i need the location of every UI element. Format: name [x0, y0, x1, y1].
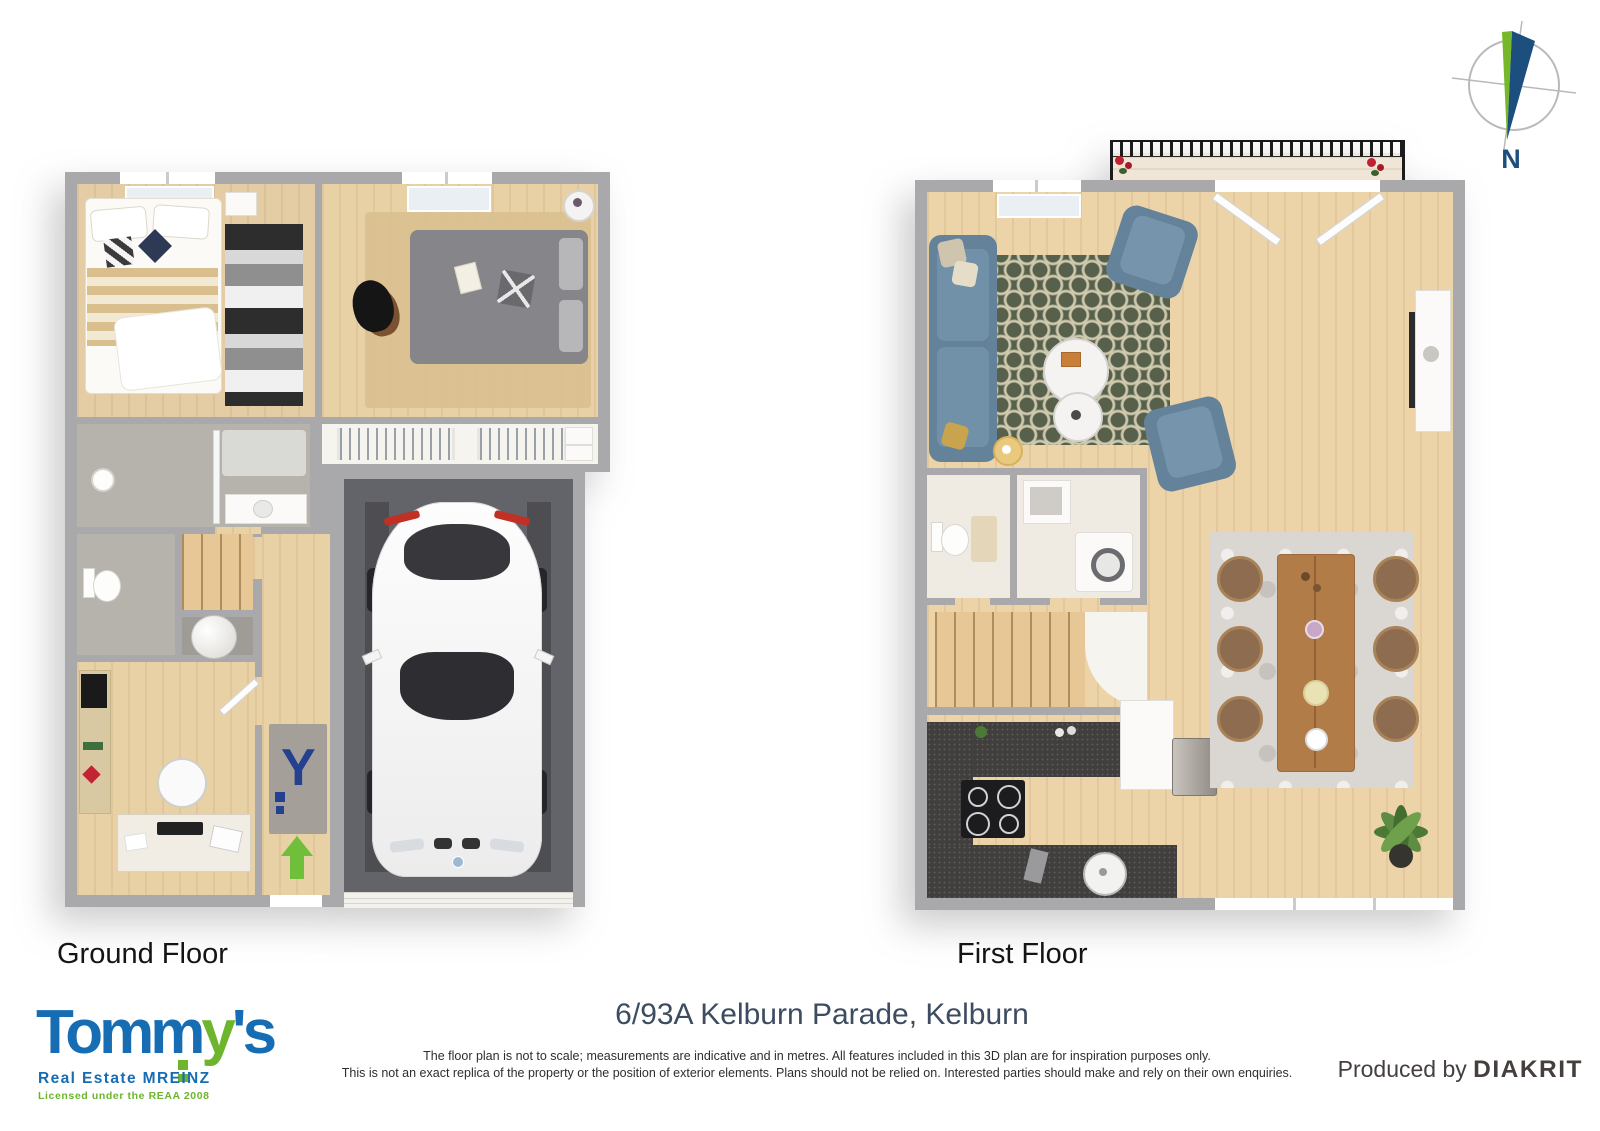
car-windshield — [400, 652, 514, 720]
car-badge — [452, 856, 464, 868]
papers — [124, 832, 148, 851]
dining-chair — [1373, 626, 1419, 672]
table-plate-gold — [1303, 680, 1329, 706]
stove-burner — [999, 814, 1019, 834]
decor-item — [573, 198, 582, 207]
balcony-railing — [1110, 140, 1405, 157]
garage-door-seam — [344, 898, 573, 899]
diakrit-logo: DIAKRIT — [1473, 1056, 1583, 1083]
tommys-wordmark: Tommy's — [36, 1002, 273, 1064]
tommys-logo: Tommy's Real Estate MREINZ Licensed unde… — [36, 1002, 316, 1112]
flower-pot-red — [1367, 158, 1376, 167]
balcony-door-opening — [1215, 180, 1380, 192]
tv-screen — [1409, 312, 1415, 408]
kitchen-jar — [1067, 726, 1076, 735]
ground-floor-plan: Y — [65, 172, 610, 907]
interior-wall — [1100, 598, 1147, 605]
interior-wall — [1010, 475, 1017, 605]
stereo-unit — [81, 674, 107, 708]
bedroom-1-rug — [225, 224, 303, 406]
coffee-table-book — [1061, 352, 1081, 367]
interior-wall — [927, 468, 1147, 475]
laundry-tub-basin — [1030, 487, 1062, 515]
stairs-opening — [253, 537, 262, 579]
dining-chair — [1217, 626, 1263, 672]
window-mullion — [445, 172, 448, 184]
nightstand — [225, 192, 257, 216]
wardrobe-hangers — [477, 428, 567, 460]
vanity-basin — [253, 500, 273, 518]
compass: N — [1448, 16, 1580, 172]
floor-label-ground: Ground Floor — [57, 938, 228, 971]
dining-chair — [1373, 696, 1419, 742]
accent-pillow-x — [496, 269, 535, 308]
throw-pillow-cream — [951, 260, 979, 288]
armchair-seat — [1155, 404, 1225, 480]
book-green — [83, 742, 103, 750]
garage-door — [344, 892, 573, 908]
window-mullion — [166, 172, 169, 184]
wardrobe-shelf-box — [565, 445, 593, 461]
kitchen-counter — [927, 845, 1177, 898]
interior-wall — [927, 707, 1125, 715]
north-label: N — [1501, 144, 1521, 172]
staircase — [935, 612, 1085, 707]
car — [372, 502, 542, 877]
entry-door-gap — [270, 895, 322, 907]
armchair-seat — [1118, 213, 1188, 287]
staircase — [182, 534, 253, 610]
office-chair — [157, 758, 207, 808]
tommys-tagline: Real Estate MREINZ — [38, 1070, 211, 1088]
floor-label-first: First Floor — [957, 938, 1088, 971]
address: 6/93A Kelburn Parade, Kelburn — [222, 998, 1422, 1032]
wardrobe-hangers — [337, 428, 455, 460]
key-tooth — [178, 1060, 188, 1070]
flower-pot-red — [1125, 162, 1132, 169]
pillow — [559, 238, 583, 290]
lower-window-band — [1215, 898, 1453, 910]
accent-pillow-checkered — [103, 236, 135, 268]
car-grille — [434, 838, 452, 849]
bedroom-2-skylight — [407, 186, 491, 212]
table-decor-twig — [1301, 572, 1310, 581]
floor-lamp — [91, 468, 115, 492]
entry-mat-dot — [276, 806, 284, 814]
flower-leaf — [1371, 170, 1379, 176]
bathroom-door-gap — [215, 527, 261, 534]
flower-leaf — [1119, 168, 1127, 174]
table-plate-white — [1305, 728, 1328, 751]
entry-mat-dot — [275, 792, 285, 802]
stove-burner — [997, 785, 1021, 809]
stove-burner — [968, 787, 988, 807]
car-rear-window — [404, 524, 510, 580]
dining-chair — [1373, 556, 1419, 602]
interior-wall — [990, 598, 1050, 605]
shower-glass — [213, 430, 220, 524]
hot-water-cylinder — [191, 615, 237, 659]
entry-mat-letter: Y — [281, 738, 316, 798]
toilet-bowl — [93, 570, 121, 602]
table-vase-flowers — [1305, 620, 1324, 639]
flower-pot-red — [1115, 156, 1124, 165]
car-grille — [462, 838, 480, 849]
produced-by: Produced by DIAKRIT — [1338, 1056, 1583, 1084]
tommys-wordmark-part: Tomm — [36, 998, 201, 1067]
living-skylight — [997, 194, 1081, 218]
wardrobe-shelf-box — [565, 427, 593, 445]
coffee-table-bowl — [1071, 410, 1081, 420]
kitchen-jar — [1055, 728, 1064, 737]
floor-lamp-bulb — [1002, 445, 1011, 454]
pillow — [559, 300, 583, 352]
entry-arrow-stem — [290, 855, 304, 879]
produced-by-prefix: Produced by — [1338, 1056, 1474, 1082]
kitchen-counter — [970, 722, 1120, 777]
window-mullion — [1035, 180, 1038, 192]
dining-chair — [1217, 696, 1263, 742]
kitchen-cabinet — [1120, 700, 1174, 790]
flower-pot-red — [1377, 164, 1384, 171]
shower-tray — [222, 430, 306, 476]
disclaimer-line-2: This is not an exact replica of the prop… — [217, 1065, 1417, 1082]
balcony-railing-post — [1110, 140, 1113, 182]
tommys-key-y: y — [201, 998, 231, 1067]
disclaimer-line-1: The floor plan is not to scale; measurem… — [217, 1048, 1417, 1065]
table-decor-twig — [1313, 584, 1321, 592]
plant-pot — [1389, 844, 1413, 868]
interior-wall — [1140, 475, 1147, 605]
cabinet-decor — [1423, 346, 1439, 362]
wc-mat — [971, 516, 997, 562]
stove-burner — [966, 812, 990, 836]
stove — [961, 780, 1025, 838]
kitchen-plant — [975, 726, 987, 738]
toilet-bowl — [941, 524, 969, 556]
washing-machine-door — [1091, 548, 1125, 582]
first-floor-plan — [915, 140, 1465, 910]
window-mullion — [1293, 898, 1296, 910]
window-mullion — [1373, 898, 1376, 910]
sink-drain — [1099, 868, 1107, 876]
dining-chair — [1217, 556, 1263, 602]
floor-plan-sheet: N — [0, 0, 1600, 1131]
tommys-license: Licensed under the REAA 2008 — [38, 1090, 210, 1102]
entry-arrow-icon — [281, 836, 313, 856]
balcony-floor — [1110, 153, 1405, 182]
balcony-railing-post — [1402, 140, 1405, 182]
bed-1-throw — [113, 306, 223, 392]
tommys-wordmark-part: 's — [232, 998, 273, 1067]
disclaimer: The floor plan is not to scale; measurem… — [217, 1048, 1417, 1081]
potted-plant — [1365, 792, 1437, 880]
interior-wall — [927, 598, 955, 605]
monitor — [157, 822, 203, 835]
garage-door-seam — [344, 903, 573, 904]
